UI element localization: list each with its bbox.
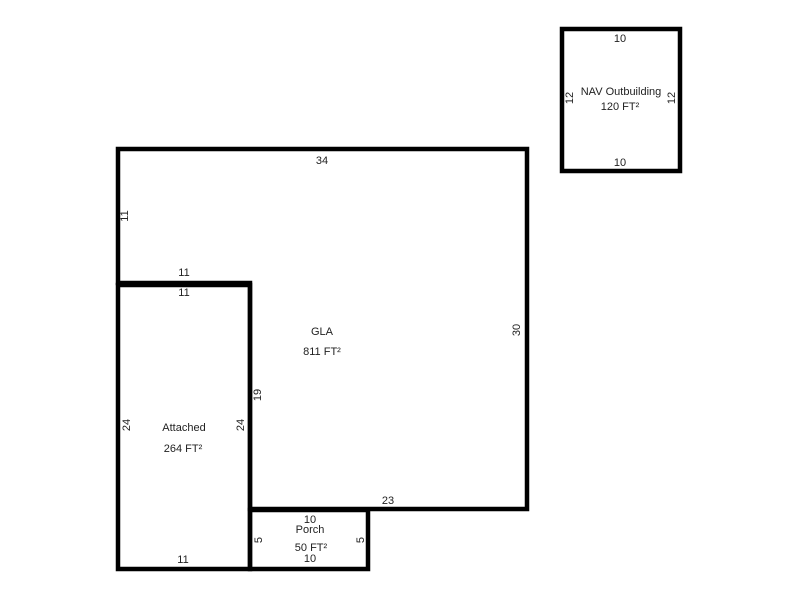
attached-area-label: 264 FT² <box>164 443 203 455</box>
gla-dimension-label: 11 <box>178 267 189 279</box>
nav-outbuilding-dimension-label: 10 <box>614 33 626 45</box>
attached-name-label: Attached <box>162 422 205 434</box>
nav-outbuilding-dimension-label: 12 <box>564 92 576 104</box>
gla-dimension-label: 34 <box>316 155 328 167</box>
floor-plan-canvas: GLA811 FT²343023191111Attached264 FT²112… <box>0 0 800 600</box>
porch-dimension-label: 5 <box>355 537 367 543</box>
area-nav-outbuilding: NAV Outbuilding120 FT²10121210 <box>562 29 680 171</box>
attached-dimension-label: 24 <box>121 419 133 431</box>
gla-name-label: GLA <box>311 326 334 338</box>
gla-dimension-label: 23 <box>382 495 394 507</box>
porch-dimension-label: 5 <box>253 537 265 543</box>
attached-dimension-label: 11 <box>178 287 189 299</box>
area-gla: GLA811 FT²343023191111 <box>118 149 527 509</box>
gla-area-label: 811 FT² <box>303 346 341 358</box>
nav-outbuilding-area-label: 120 FT² <box>601 101 640 113</box>
gla-dimension-label: 30 <box>511 324 523 336</box>
nav-outbuilding-outline <box>562 29 680 171</box>
floor-plan-sketch: GLA811 FT²343023191111Attached264 FT²112… <box>0 0 800 600</box>
gla-dimension-label: 11 <box>119 210 131 221</box>
nav-outbuilding-dimension-label: 10 <box>614 157 626 169</box>
attached-dimension-label: 24 <box>235 419 247 431</box>
attached-dimension-label: 11 <box>177 554 188 566</box>
porch-dimension-label: 10 <box>304 553 316 565</box>
nav-outbuilding-name-label: NAV Outbuilding <box>581 86 662 98</box>
area-attached: Attached264 FT²11242411 <box>118 285 250 569</box>
area-porch: Porch50 FT²105510 <box>250 510 368 569</box>
nav-outbuilding-dimension-label: 12 <box>666 92 678 104</box>
gla-dimension-label: 19 <box>252 389 264 401</box>
porch-dimension-label: 10 <box>304 514 316 526</box>
